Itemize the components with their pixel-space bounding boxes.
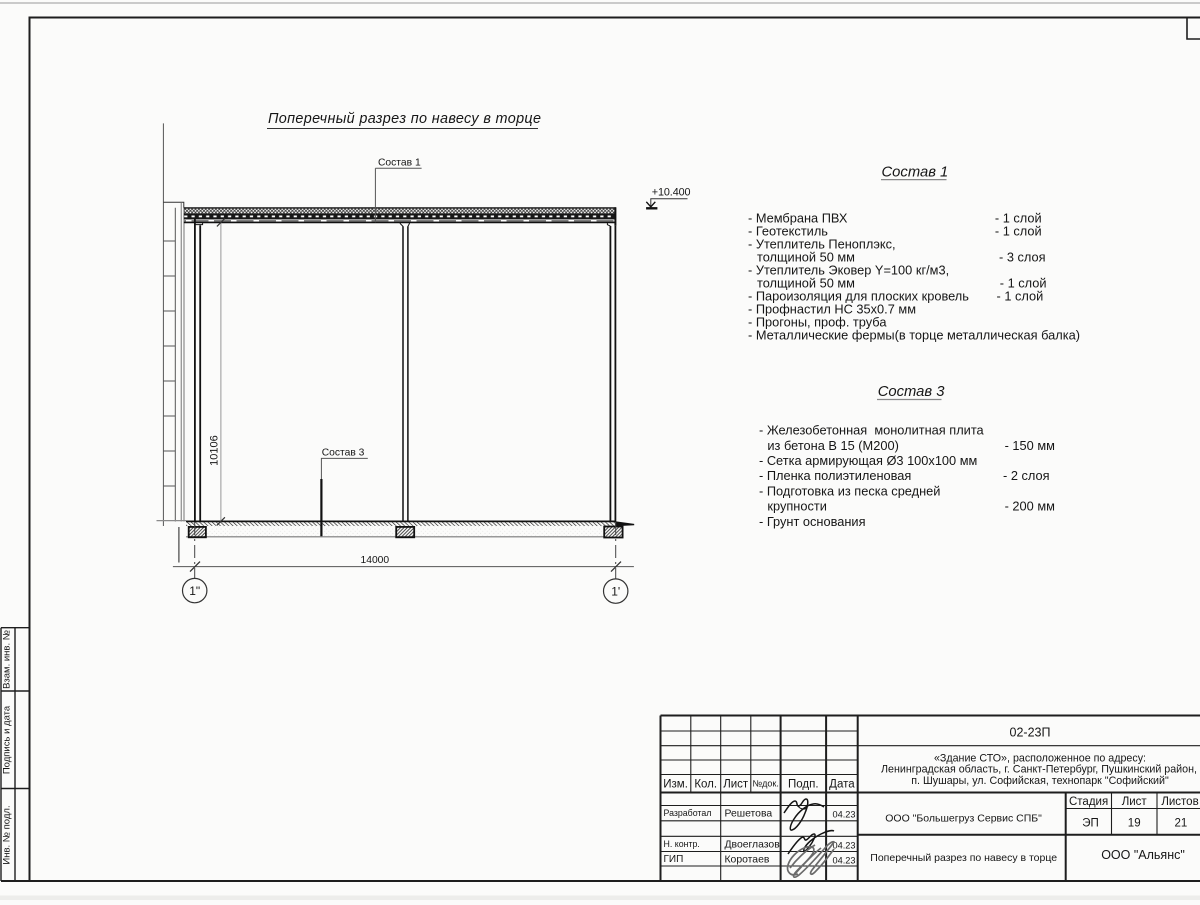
svg-text:ООО "Большегруз Сервис СПБ": ООО "Большегруз Сервис СПБ": [885, 813, 1042, 825]
svg-text:Стадия: Стадия: [1069, 796, 1108, 808]
svg-text:1": 1": [189, 584, 200, 598]
svg-text:14000: 14000: [361, 555, 390, 566]
svg-text:04.23: 04.23: [833, 841, 856, 851]
svg-text:02-23П: 02-23П: [1010, 725, 1051, 739]
svg-text:Состав 1: Состав 1: [882, 164, 949, 180]
svg-text:Кол.: Кол.: [694, 779, 717, 791]
svg-text:Коротаев: Коротаев: [725, 855, 770, 866]
svg-text:Состав 1: Состав 1: [378, 157, 421, 168]
svg-text:- Подготовка из песка средней: - Подготовка из песка средней: [759, 483, 940, 498]
svg-text:Дата: Дата: [829, 779, 855, 791]
svg-text:Лист: Лист: [723, 779, 749, 791]
svg-text:Поперечный разрез по навесу в: Поперечный разрез по навесу в торце: [268, 111, 541, 127]
svg-text:«Здание СТО», расположенное по: «Здание СТО», расположенное по адресу:: [934, 752, 1146, 764]
svg-text:Поперечный разрез по навесу в: Поперечный разрез по навесу в торце: [870, 852, 1057, 864]
svg-text:19: 19: [1128, 818, 1141, 830]
svg-text:- 1 слой: - 1 слой: [997, 289, 1044, 304]
svg-text:Инв. № подл.: Инв. № подл.: [2, 805, 13, 864]
svg-text:Лист: Лист: [1122, 796, 1148, 808]
svg-text:- 1 слой: - 1 слой: [995, 224, 1042, 239]
svg-text:Изм.: Изм.: [663, 779, 688, 791]
svg-text:п. Шушары, ул. Софийская, техн: п. Шушары, ул. Софийская, технопарк "Соф…: [911, 775, 1169, 787]
svg-text:04.23: 04.23: [833, 856, 856, 866]
svg-text:№док.: №док.: [753, 779, 779, 789]
svg-text:- Пленка полиэтиленовая: - Пленка полиэтиленовая: [759, 468, 911, 483]
svg-text:Разработал: Разработал: [664, 808, 712, 818]
svg-text:Ленинградская область, г. Санк: Ленинградская область, г. Санкт-Петербур…: [881, 764, 1197, 776]
svg-text:Подп.: Подп.: [788, 779, 819, 791]
svg-text:Состав 3: Состав 3: [878, 384, 946, 400]
svg-text:- 3 слоя: - 3 слоя: [999, 250, 1046, 265]
svg-text:- Грунт основания: - Грунт основания: [759, 514, 866, 529]
svg-text:+10.400: +10.400: [652, 186, 691, 198]
svg-text:- 2 слоя: - 2 слоя: [1003, 468, 1050, 483]
svg-text:- Железобетонная монолитная п: - Железобетонная монолитная плита: [759, 423, 985, 438]
svg-text:Взам. инв. №: Взам. инв. №: [2, 630, 13, 689]
svg-text:04.23: 04.23: [833, 810, 856, 820]
svg-text:21: 21: [1175, 818, 1188, 830]
svg-text:из бетона В 15 (М200): из бетона В 15 (М200): [767, 438, 898, 453]
svg-text:- 200 мм: - 200 мм: [1005, 499, 1055, 514]
svg-text:Листов: Листов: [1161, 796, 1198, 808]
svg-text:10106: 10106: [209, 435, 221, 466]
svg-text:Решетова: Решетова: [725, 809, 773, 820]
svg-text:ООО "Альянс": ООО "Альянс": [1101, 848, 1185, 862]
svg-text:Двоеглазов: Двоеглазов: [725, 840, 781, 851]
svg-text:Н. контр.: Н. контр.: [664, 839, 700, 849]
svg-text:Подпись и дата: Подпись и дата: [2, 705, 13, 774]
svg-text:крупности: крупности: [767, 499, 827, 514]
svg-text:Состав 3: Состав 3: [322, 448, 365, 459]
svg-text:- 150 мм: - 150 мм: [1005, 438, 1055, 453]
svg-text:1': 1': [611, 585, 620, 599]
svg-text:- Металлические фермы(в торце: - Металлические фермы(в торце металличес…: [748, 328, 1080, 343]
svg-text:- Сетка армирующая Ø3 100х100: - Сетка армирующая Ø3 100х100 мм: [759, 453, 977, 468]
svg-text:ЭП: ЭП: [1082, 818, 1099, 830]
svg-text:ГИП: ГИП: [664, 854, 684, 865]
